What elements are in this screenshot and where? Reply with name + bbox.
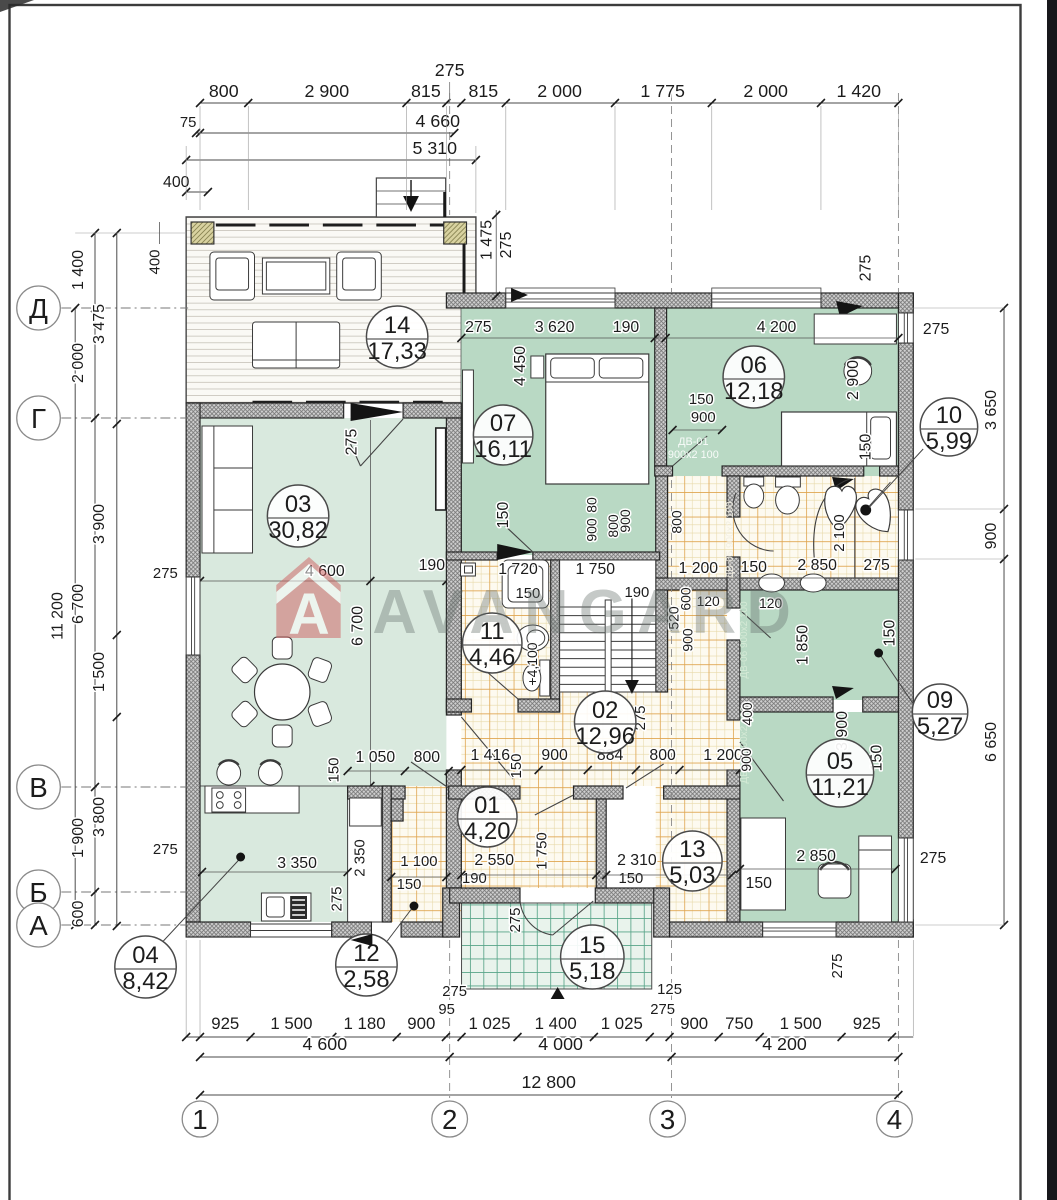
svg-text:190: 190: [419, 557, 446, 574]
svg-text:2 000: 2 000: [743, 81, 788, 101]
svg-text:1 500: 1 500: [780, 1014, 822, 1033]
svg-text:6 700: 6 700: [70, 584, 87, 624]
svg-text:275: 275: [442, 983, 467, 1000]
svg-text:800: 800: [209, 81, 239, 101]
svg-text:800: 800: [669, 510, 685, 534]
svg-text:150: 150: [326, 757, 343, 782]
svg-text:1 500: 1 500: [270, 1014, 312, 1033]
svg-text:Д: Д: [29, 293, 48, 324]
svg-text:275: 275: [329, 886, 346, 911]
svg-text:5,18: 5,18: [569, 958, 615, 985]
svg-text:+4,100: +4,100: [524, 642, 540, 685]
svg-text:150: 150: [508, 753, 525, 778]
svg-text:800: 800: [649, 747, 676, 764]
svg-text:2 350: 2 350: [352, 839, 369, 877]
svg-text:275: 275: [863, 557, 890, 574]
svg-text:275: 275: [435, 60, 465, 80]
svg-text:12,96: 12,96: [575, 723, 634, 750]
svg-text:3 620: 3 620: [535, 319, 575, 336]
svg-text:2 900: 2 900: [305, 81, 350, 101]
svg-text:815: 815: [411, 81, 441, 101]
svg-text:2 100: 2 100: [831, 514, 848, 552]
svg-text:1 200: 1 200: [678, 560, 718, 577]
svg-text:15: 15: [579, 932, 605, 959]
svg-text:3: 3: [660, 1104, 675, 1135]
svg-text:1 400: 1 400: [70, 250, 87, 290]
svg-text:95: 95: [438, 1001, 455, 1018]
svg-text:150: 150: [689, 391, 714, 408]
svg-text:2 310: 2 310: [617, 852, 657, 869]
svg-text:AVANGARD: AVANGARD: [372, 578, 801, 647]
svg-text:750: 750: [725, 1014, 753, 1033]
svg-text:900: 900: [407, 1014, 435, 1033]
svg-text:4 660: 4 660: [415, 111, 460, 131]
svg-text:12 800: 12 800: [521, 1072, 576, 1092]
svg-text:5,99: 5,99: [926, 428, 972, 455]
svg-text:8,42: 8,42: [122, 968, 168, 995]
svg-text:2: 2: [442, 1104, 457, 1135]
svg-text:2,58: 2,58: [343, 966, 389, 993]
svg-text:1: 1: [192, 1104, 207, 1135]
svg-text:1 420: 1 420: [836, 81, 881, 101]
svg-text:275: 275: [920, 850, 947, 867]
svg-text:4 000: 4 000: [538, 1034, 583, 1054]
svg-text:925: 925: [853, 1014, 881, 1033]
svg-text:5 310: 5 310: [412, 138, 457, 158]
svg-text:17,33: 17,33: [367, 338, 426, 365]
svg-text:275: 275: [153, 841, 178, 858]
svg-text:2 000: 2 000: [537, 81, 582, 101]
svg-text:3 900: 3 900: [91, 504, 108, 544]
svg-text:150: 150: [746, 875, 773, 892]
svg-text:1 500: 1 500: [91, 652, 108, 692]
svg-text:400: 400: [163, 174, 190, 191]
svg-text:6 700: 6 700: [350, 606, 367, 646]
svg-text:75: 75: [180, 114, 197, 131]
svg-text:1 475: 1 475: [478, 220, 495, 260]
svg-text:2 850: 2 850: [796, 848, 836, 865]
svg-text:900х2 100: 900х2 100: [668, 449, 719, 461]
svg-text:1 025: 1 025: [468, 1014, 510, 1033]
svg-text:1 750: 1 750: [575, 561, 615, 578]
svg-text:05: 05: [827, 748, 853, 775]
svg-text:4 600: 4 600: [303, 1034, 348, 1054]
svg-text:01: 01: [474, 792, 500, 819]
svg-text:11 200: 11 200: [49, 592, 66, 640]
svg-text:600: 600: [70, 901, 87, 928]
svg-text:06: 06: [741, 352, 767, 379]
svg-text:815: 815: [468, 81, 498, 101]
svg-text:275: 275: [858, 255, 875, 282]
svg-text:1 720: 1 720: [498, 561, 538, 578]
svg-text:04: 04: [132, 942, 158, 969]
svg-text:125: 125: [657, 981, 682, 998]
svg-text:3 350: 3 350: [277, 855, 317, 872]
svg-text:4,46: 4,46: [469, 644, 515, 671]
svg-text:150: 150: [397, 876, 422, 893]
svg-text:4 200: 4 200: [762, 1034, 807, 1054]
svg-text:150: 150: [882, 620, 899, 647]
svg-text:5,27: 5,27: [917, 713, 963, 740]
svg-text:275: 275: [829, 953, 846, 978]
svg-text:900: 900: [691, 409, 716, 426]
svg-text:150: 150: [619, 870, 644, 887]
svg-text:150: 150: [858, 434, 875, 461]
svg-text:2 000: 2 000: [70, 343, 87, 383]
svg-text:2 900: 2 900: [845, 360, 862, 400]
svg-text:4 200: 4 200: [757, 319, 797, 336]
svg-text:275: 275: [507, 907, 524, 932]
svg-text:900: 900: [738, 748, 754, 772]
svg-text:11,21: 11,21: [811, 774, 869, 801]
svg-text:800: 800: [414, 749, 441, 766]
svg-text:275: 275: [923, 321, 950, 338]
svg-text:1 025: 1 025: [601, 1014, 643, 1033]
svg-text:275: 275: [498, 232, 515, 259]
svg-text:275: 275: [465, 319, 492, 336]
svg-text:ДВ-01: ДВ-01: [678, 436, 708, 448]
svg-text:6 650: 6 650: [983, 722, 1000, 762]
svg-text:4,20: 4,20: [464, 818, 510, 845]
svg-text:10: 10: [936, 402, 962, 429]
svg-text:4: 4: [887, 1104, 902, 1135]
svg-text:275: 275: [153, 565, 178, 582]
svg-text:07: 07: [490, 410, 516, 437]
svg-text:190: 190: [613, 319, 640, 336]
svg-text:1 050: 1 050: [356, 749, 396, 766]
svg-text:150: 150: [495, 502, 512, 529]
svg-text:900: 900: [617, 509, 633, 533]
svg-text:В: В: [29, 772, 48, 803]
svg-text:1 775: 1 775: [640, 81, 685, 101]
svg-text:1 100: 1 100: [400, 853, 437, 870]
svg-text:A: A: [288, 583, 329, 647]
svg-text:03: 03: [285, 491, 311, 518]
svg-text:190: 190: [462, 870, 487, 887]
svg-text:А: А: [29, 910, 48, 941]
svg-text:3 475: 3 475: [91, 304, 108, 344]
svg-text:3 650: 3 650: [983, 390, 1000, 430]
svg-text:925: 925: [211, 1014, 239, 1033]
svg-text:275: 275: [650, 1001, 675, 1018]
svg-text:3 800: 3 800: [91, 797, 108, 837]
svg-text:1 180: 1 180: [344, 1014, 386, 1033]
svg-text:ДВ-05 900х2 100: ДВ-05 900х2 100: [725, 501, 736, 579]
svg-text:1 750: 1 750: [534, 832, 551, 870]
svg-text:5,03: 5,03: [669, 862, 715, 889]
svg-text:13: 13: [679, 836, 705, 863]
svg-text:275: 275: [344, 429, 361, 456]
svg-text:1 416: 1 416: [470, 747, 510, 764]
svg-text:Г: Г: [31, 403, 46, 434]
svg-text:400: 400: [146, 249, 163, 274]
svg-text:12,18: 12,18: [724, 378, 783, 405]
svg-text:09: 09: [927, 687, 953, 714]
svg-text:900: 900: [983, 523, 1000, 550]
svg-text:14: 14: [384, 312, 410, 339]
svg-text:16,11: 16,11: [474, 436, 532, 463]
svg-text:400: 400: [739, 702, 755, 726]
svg-text:80: 80: [583, 497, 599, 513]
svg-text:1 400: 1 400: [535, 1014, 577, 1033]
svg-text:30,82: 30,82: [268, 517, 327, 544]
svg-text:02: 02: [592, 697, 618, 724]
svg-text:900: 900: [680, 1014, 708, 1033]
svg-text:2 550: 2 550: [474, 852, 514, 869]
svg-text:2 850: 2 850: [797, 557, 837, 574]
svg-text:150: 150: [741, 559, 768, 576]
svg-text:1 900: 1 900: [70, 818, 87, 858]
svg-text:4 450: 4 450: [512, 346, 529, 386]
svg-text:900: 900: [583, 518, 599, 542]
svg-text:900: 900: [541, 747, 568, 764]
